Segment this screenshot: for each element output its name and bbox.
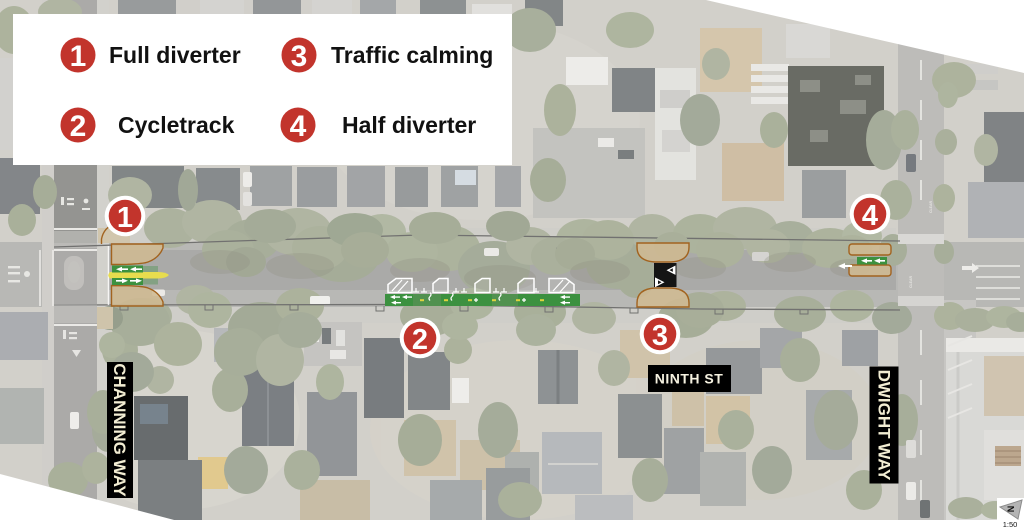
svg-text:1: 1 (117, 202, 133, 234)
svg-text:Full diverter: Full diverter (109, 42, 241, 68)
svg-text:4: 4 (862, 200, 878, 232)
svg-text:4: 4 (290, 110, 307, 143)
svg-text:1: 1 (70, 40, 87, 73)
svg-text:3: 3 (291, 40, 308, 73)
svg-text:Half diverter: Half diverter (342, 112, 476, 138)
svg-text:1:50: 1:50 (1003, 520, 1018, 529)
svg-text:DWIGHT WAY: DWIGHT WAY (875, 370, 894, 481)
svg-text:2: 2 (70, 110, 87, 143)
svg-text:Cycletrack: Cycletrack (118, 112, 235, 138)
svg-text:2: 2 (412, 324, 428, 356)
svg-text:CHANNING WAY: CHANNING WAY (110, 363, 129, 497)
svg-text:NINTH ST: NINTH ST (655, 371, 724, 387)
svg-text:Traffic calming: Traffic calming (331, 42, 493, 68)
svg-text:N: N (1006, 506, 1016, 513)
svg-text:3: 3 (652, 320, 668, 352)
